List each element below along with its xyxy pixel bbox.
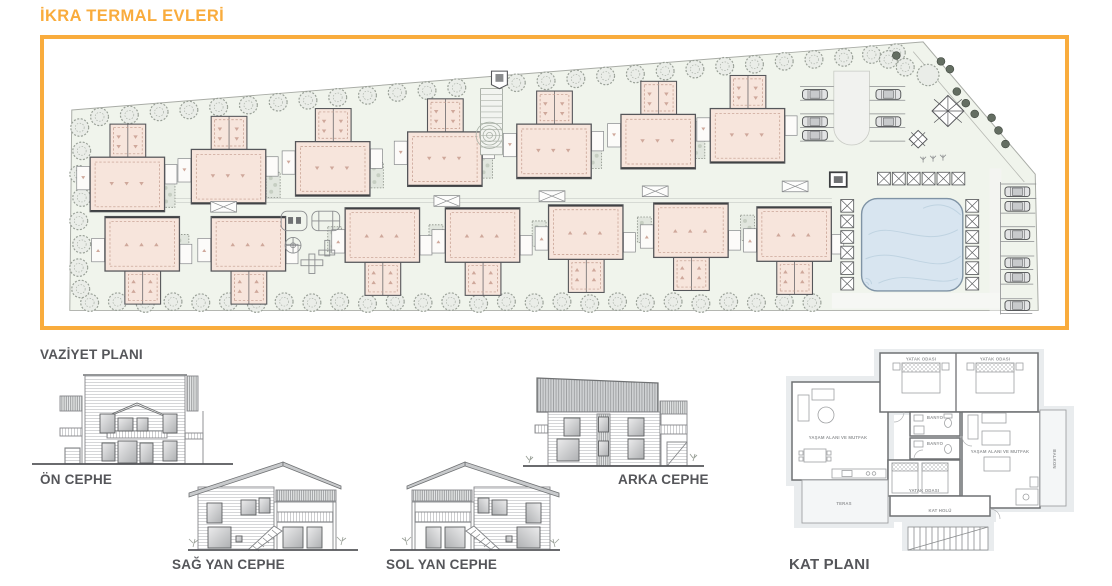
elevation-front-label: ÖN CEPHE bbox=[40, 472, 112, 487]
site-plan-label: VAZİYET PLANI bbox=[40, 347, 143, 362]
roof bbox=[537, 378, 658, 412]
room-label-bathroom-2: BANYO bbox=[927, 441, 944, 446]
architectural-sheet: İKRA TERMAL EVLERİ bbox=[0, 0, 1112, 586]
elevation-right-drawing bbox=[186, 450, 366, 557]
site-plan-drawing bbox=[44, 39, 1065, 326]
page-title: İKRA TERMAL EVLERİ bbox=[40, 7, 224, 26]
room-label-balcony: BALKON bbox=[1052, 449, 1057, 468]
room-label-bathroom-1: BANYO bbox=[927, 415, 944, 420]
elevation-back-label: ARKA CEPHE bbox=[618, 472, 709, 487]
roof-right-slope bbox=[283, 462, 341, 489]
bottom-path bbox=[832, 293, 1001, 309]
site-plan-frame bbox=[40, 35, 1069, 330]
elevation-left-drawing bbox=[382, 450, 562, 557]
side-road bbox=[990, 168, 1002, 310]
room-label-terrace: TERAS bbox=[836, 501, 851, 506]
stairs bbox=[908, 527, 988, 550]
room-label-bedroom-1: YATAK ODASI bbox=[906, 357, 936, 362]
floor-plan-drawing: YATAK ODASI YATAK ODASI BANYO BANYO YAŞA… bbox=[786, 349, 1080, 563]
floor-plan-label: KAT PLANI bbox=[789, 556, 870, 573]
swimming-pool bbox=[862, 199, 963, 291]
side-elevation-group bbox=[188, 462, 358, 551]
driveway bbox=[834, 71, 870, 145]
room-label-bedroom-2: YATAK ODASI bbox=[980, 357, 1010, 362]
room-label-hall: KAT HOLÜ bbox=[928, 508, 951, 513]
room-label-bedroom-3: YATAK ODASI bbox=[909, 488, 939, 493]
room-label-living-2: YAŞAM ALANI VE MUTFAK bbox=[971, 449, 1030, 454]
elevation-right-label: SAĞ YAN CEPHE bbox=[172, 557, 285, 572]
elevation-left-label: SOL YAN CEPHE bbox=[386, 557, 497, 572]
room-label-living-1: YAŞAM ALANI VE MUTFAK bbox=[809, 435, 868, 440]
